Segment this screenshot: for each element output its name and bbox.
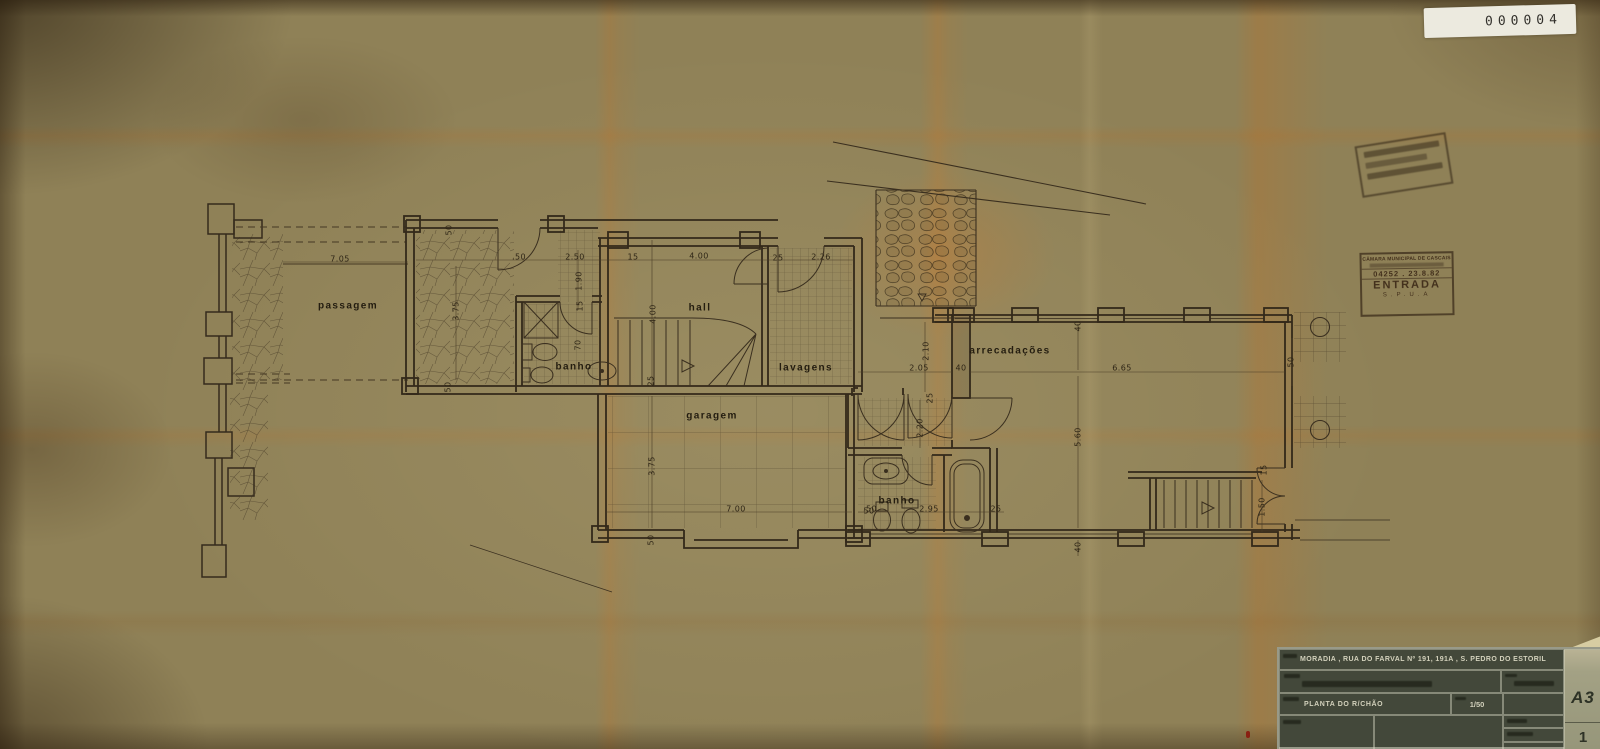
dimension-label: 7.05	[330, 255, 349, 264]
room-label-garagem: garagem	[686, 411, 738, 422]
floor-patterns	[230, 190, 1346, 530]
title-block-scale-cell: 1/50	[1451, 693, 1503, 715]
dimension-label: 4.00	[649, 304, 658, 323]
dimension-label: 70	[574, 340, 583, 351]
title-block-drawing-cell: PLANTA DO R/CHÃO	[1279, 693, 1451, 715]
dimension-label: 15	[1260, 465, 1269, 476]
dimension-label: 2.10	[922, 341, 931, 360]
dimension-label: 40	[1074, 321, 1083, 332]
entry-stamp-word: ENTRADA	[1362, 278, 1452, 293]
dimension-label: 50	[445, 225, 454, 236]
dimension-label: .50	[512, 253, 526, 262]
dimension-label: 25	[926, 393, 935, 404]
dimension-label: 25	[647, 376, 656, 387]
title-block-small-cell-2	[1503, 728, 1564, 742]
room-label-passagem: passagem	[318, 301, 378, 312]
red-ink-mark	[1246, 731, 1250, 738]
dimension-label: 2.26	[811, 253, 830, 262]
dimension-label: 2.20	[916, 418, 925, 437]
room-label-banho-1: banho	[556, 362, 593, 373]
dimension-label: 40	[956, 364, 967, 373]
title-block-empty-cell	[1503, 693, 1564, 715]
title-block-small-cell-3	[1503, 742, 1564, 749]
title-block: MORADIA , RUA DO FARVAL Nº 191, 191A , S…	[1277, 647, 1600, 749]
dimension-label: .50	[863, 505, 877, 514]
entry-stamp: CÂMARA MUNICIPAL DE CASCAIS 04252 . 23.8…	[1359, 251, 1454, 317]
floor-plan-drawing	[0, 0, 1600, 749]
room-label-arrecadacoes: arrecadações	[969, 346, 1050, 357]
title-block-bottom-left-cell	[1279, 715, 1374, 749]
title-block-owner-cell	[1279, 670, 1501, 693]
dimension-label: 3.75	[452, 301, 461, 320]
dimension-label: 50	[444, 382, 453, 393]
room-label-hall: hall	[689, 303, 712, 314]
dimension-label: 1.50	[1258, 497, 1267, 516]
room-label-banho-2: banho	[879, 496, 916, 507]
title-block-bottom-mid-cell	[1374, 715, 1503, 749]
room-label-lavagens: lavagens	[779, 363, 833, 374]
dimension-label: 15	[628, 253, 639, 262]
dimension-label: 2.05	[909, 364, 928, 373]
dimension-label: 25	[991, 505, 1002, 514]
sheet-size: A3	[1571, 688, 1595, 708]
dimension-label: 7.00	[726, 505, 745, 514]
title-block-address-cell: MORADIA , RUA DO FARVAL Nº 191, 191A , S…	[1279, 649, 1564, 670]
dimension-label: 5.60	[1074, 427, 1083, 446]
title-block-small-cell-1	[1503, 715, 1564, 728]
title-block-sheet-cell: A3 1	[1564, 649, 1600, 749]
dimension-label: 2.95	[919, 505, 938, 514]
dimension-label: 1.90	[575, 271, 584, 290]
drawing-title: PLANTA DO R/CHÃO	[1304, 701, 1383, 708]
sheet-number: 1	[1565, 722, 1600, 746]
dimension-label: 4.00	[689, 252, 708, 261]
dimension-label: 2.50	[565, 253, 584, 262]
title-block-aux-cell	[1501, 670, 1564, 693]
dimension-label: 25	[773, 254, 784, 263]
scale-value: 1/50	[1470, 700, 1485, 709]
archive-number-label: 000004	[1424, 4, 1577, 38]
dimension-label: 50	[647, 535, 656, 546]
dimension-label: 3.75	[648, 456, 657, 475]
archive-number: 000004	[1485, 12, 1562, 29]
dimension-label: 15	[576, 301, 585, 312]
address-line: MORADIA , RUA DO FARVAL Nº 191, 191A , S…	[1300, 656, 1546, 663]
dimension-label: 50	[1287, 357, 1296, 368]
dimension-label: 6.65	[1112, 364, 1131, 373]
dimension-label: 40	[1074, 542, 1083, 553]
scanned-floor-plan-document: passagembanhohalllavagensgaragemarrecada…	[0, 0, 1600, 749]
